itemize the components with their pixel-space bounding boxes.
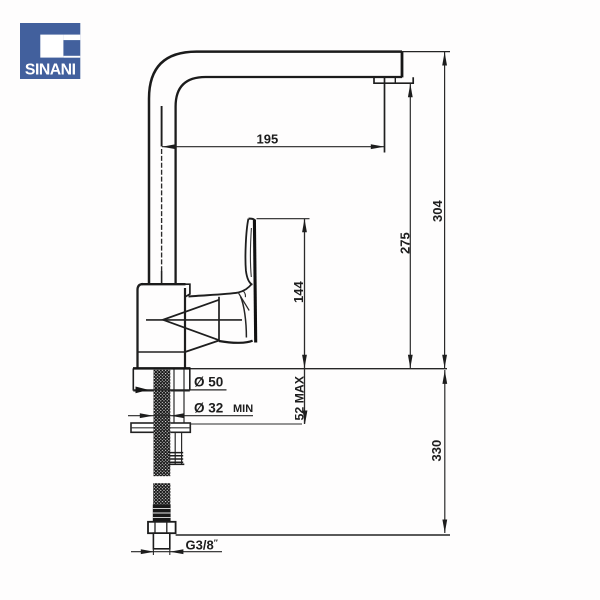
svg-text:MIN: MIN [233, 403, 253, 415]
svg-text:Ø 50: Ø 50 [194, 374, 223, 389]
svg-text:G3/8″: G3/8″ [186, 538, 218, 553]
svg-text:144: 144 [291, 281, 306, 303]
svg-text:275: 275 [398, 232, 413, 254]
svg-text:Ø 32: Ø 32 [194, 401, 223, 416]
svg-text:SINANI: SINANI [25, 62, 76, 79]
svg-text:304: 304 [430, 200, 445, 222]
svg-text:330: 330 [429, 440, 444, 462]
svg-text:52 MAX: 52 MAX [293, 375, 307, 420]
svg-text:195: 195 [257, 132, 279, 147]
